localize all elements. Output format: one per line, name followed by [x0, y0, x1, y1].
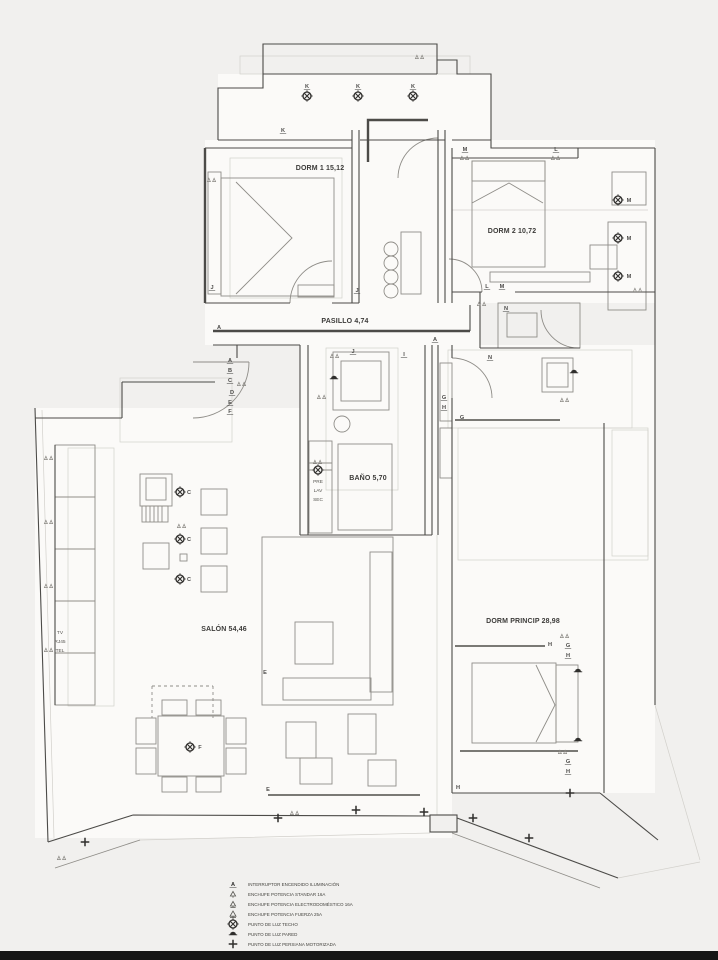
switch-letter: M — [500, 284, 505, 290]
switch-letter: L — [554, 147, 558, 153]
legend-label: ENCHUFE POTENCIA FUERZA 25A — [248, 912, 322, 917]
switch-letter: B — [228, 368, 232, 374]
switch-letter: J — [351, 349, 354, 355]
floor-fill-layer — [35, 74, 655, 838]
room-label-dorm2: DORM 2 10,72 — [488, 228, 537, 235]
socket-standard-icon — [230, 891, 235, 897]
legend-item: PUNTO DE LUZ TECHO — [227, 918, 298, 929]
switch-letter: K — [411, 84, 415, 90]
switch-letter: A — [217, 325, 221, 331]
motorized-blind-icon — [229, 940, 238, 949]
legend-item: ENCHUFE POTENCIA STANDAR 16A — [230, 891, 325, 897]
label-rj45: RJ45 — [54, 639, 66, 645]
floor-plan-page: KKKKMLJJLMAABCDEFJINNAGHGHGHMMMCCCFEEHHG… — [0, 0, 718, 960]
socket-power-icon — [230, 911, 236, 918]
room-label-dorm1: DORM 1 15,12 — [296, 165, 345, 172]
switch-letter: E — [266, 787, 270, 793]
switch-letter: E — [263, 670, 267, 676]
switch-letter: K — [356, 84, 360, 90]
floor-plan-svg: KKKKMLJJLMAABCDEFJINNAGHGHGHMMMCCCFEEHHG… — [0, 0, 718, 960]
switch-letter: A — [228, 358, 232, 364]
label-tel: TEL — [56, 648, 65, 654]
wall-light-icon — [229, 932, 237, 935]
switch-letter: H — [442, 405, 446, 411]
legend-label: ENCHUFE POTENCIA STANDAR 16A — [248, 892, 325, 897]
switch-letter: A — [433, 337, 437, 343]
label-sec: SEC — [313, 497, 323, 503]
switch-letter: C — [187, 577, 191, 583]
switch-letter: N — [488, 355, 492, 361]
legend-label: ENCHUFE POTENCIA ELECTRODOMÉSTICO 16A — [248, 901, 353, 907]
switch-letter: H — [548, 642, 552, 648]
legend-label: INTERRUPTOR ENCENDIDO ILUMINACIÓN — [248, 881, 339, 887]
legend-item: A INTERRUPTOR ENCENDIDO ILUMINACIÓN — [230, 881, 340, 888]
room-label-salon: SALÓN 54,46 — [201, 624, 247, 633]
switch-letter: G — [460, 415, 464, 421]
switch-letter: H — [566, 653, 570, 659]
switch-letter: F — [198, 745, 202, 751]
socket-appliance-icon — [230, 901, 235, 907]
switch-icon: A — [231, 882, 235, 888]
switch-letter: M — [627, 274, 632, 280]
ceiling-light-icon — [227, 918, 238, 929]
switch-letter: K — [305, 84, 309, 90]
legend-label: PUNTO DE LUZ PERSIANA MOTORIZADA — [248, 942, 336, 947]
switch-letter: C — [187, 537, 191, 543]
switch-letter: J — [210, 285, 213, 291]
switch-letter: M — [627, 236, 632, 242]
switch-letter: E — [228, 400, 232, 406]
switch-letter: M — [627, 198, 632, 204]
legend-item: ENCHUFE POTENCIA ELECTRODOMÉSTICO 16A — [230, 901, 352, 907]
room-label-bano: BAÑO 5,70 — [349, 473, 387, 482]
bottom-bar — [0, 951, 718, 960]
switch-letter: K — [281, 128, 285, 134]
legend-item: ENCHUFE POTENCIA FUERZA 25A — [230, 911, 322, 918]
socket-icon — [57, 856, 65, 859]
label-tv: TV — [57, 630, 64, 636]
switch-letter: G — [442, 395, 446, 401]
switch-letter: N — [504, 306, 508, 312]
legend-label: PUNTO DE LUZ TECHO — [248, 922, 298, 927]
switch-letter: C — [228, 378, 232, 384]
switch-letter: G — [566, 759, 570, 765]
switch-letter: L — [485, 284, 489, 290]
label-lav: LAV — [314, 488, 324, 494]
motorized-blind-icon — [469, 814, 478, 823]
switch-letter: G — [566, 643, 570, 649]
motorized-blind-icon — [525, 834, 534, 843]
motorized-blind-icon — [81, 838, 90, 847]
switch-letter: H — [566, 769, 570, 775]
room-label-pasillo: PASILLO 4,74 — [321, 318, 368, 325]
switch-letter: M — [463, 147, 468, 153]
switch-letter: D — [230, 390, 234, 396]
switch-letter: C — [187, 490, 191, 496]
label-pre: PRE — [313, 479, 323, 485]
switch-letter: H — [456, 785, 460, 791]
legend-item: PUNTO DE LUZ PARED — [229, 932, 298, 937]
room-label-dorm-princip: DORM PRINCIP 28,98 — [486, 618, 560, 625]
legend: A INTERRUPTOR ENCENDIDO ILUMINACIÓN ENCH… — [227, 881, 352, 948]
legend-item: PUNTO DE LUZ PERSIANA MOTORIZADA — [229, 940, 336, 949]
legend-label: PUNTO DE LUZ PARED — [248, 932, 298, 937]
switch-letter: F — [228, 409, 232, 415]
switch-letter: J — [355, 288, 358, 294]
